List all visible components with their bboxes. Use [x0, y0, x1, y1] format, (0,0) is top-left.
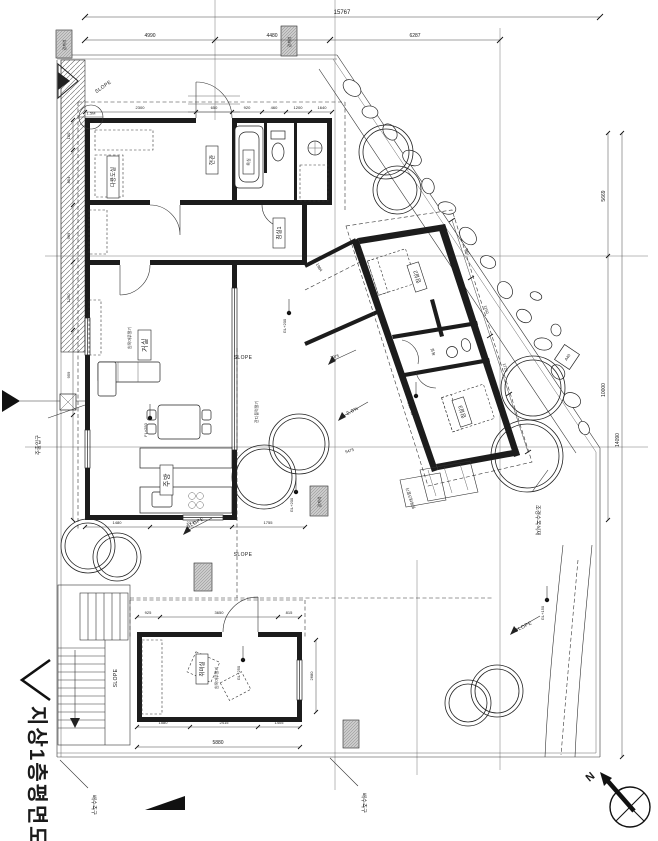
annotation-planting: 조경수목식재: [534, 505, 542, 535]
dim-at-2: 3650: [215, 610, 225, 615]
room-label-living: 거실: [140, 338, 149, 352]
trees: [61, 125, 565, 726]
boundary-stone-label: 경계석: [61, 39, 67, 50]
room-label-entrance: 현관: [208, 155, 216, 165]
sofa: [98, 362, 160, 396]
dim-left-5: 959: [66, 371, 71, 378]
dim-annex-total: 5880: [212, 740, 223, 746]
page-title: 지상1층평면도: [25, 706, 48, 841]
room-label-pantry: 다용도실: [109, 167, 117, 187]
annex-door: [223, 597, 258, 632]
pantry-shelf: [89, 210, 107, 254]
slope-label: SLOPE: [514, 620, 534, 634]
slope-label: SLOPE: [234, 355, 253, 361]
dim-ab-2: 2415: [220, 720, 230, 725]
slope-label: SLOPE: [94, 79, 113, 95]
dim-ab-3: 1405: [275, 720, 285, 725]
level-marker: GL+250: [236, 646, 245, 680]
dim-right-1: 5669: [601, 190, 607, 201]
boundary-stone-label: 경계석: [316, 496, 322, 507]
dim-left-3: 969: [66, 232, 71, 239]
svg-text:FL+250: FL+250: [143, 422, 148, 436]
dim-hb-1: 1480: [113, 520, 123, 525]
annex-closet: [142, 640, 162, 714]
level-marker: GL+150: [540, 586, 549, 620]
dim-int-1: 2300: [136, 105, 146, 110]
annotation-wood-floor: 원목마루깔기: [126, 327, 132, 349]
toilet: [272, 143, 284, 161]
wing-toilet: [460, 337, 473, 352]
north-arrow: N: [584, 770, 650, 827]
dim-at-3: 815: [286, 610, 293, 615]
wing: [346, 210, 532, 507]
slope-label: SLOPE: [234, 552, 253, 558]
leader-annotations: 주출입구 배수측구 배수측구 조경수목식재 잔디블럭깔기 원목데크깔기 원목마루…: [34, 327, 548, 815]
room-label-wing-bath: 욕실: [428, 347, 436, 356]
section-marker: [2, 390, 20, 412]
room-label-bedroom1: 침실1: [275, 226, 283, 239]
slope-labels: SLOPE SLOPE SLOPE SLOPE SLOPE SLOPE 2.0%: [94, 79, 533, 687]
dining-table: [147, 405, 211, 439]
annotation-wood-floor: 원목마루깔기: [213, 667, 219, 689]
room-label-annex: 취미실: [198, 661, 206, 676]
dim-right-2: 10000: [601, 383, 607, 397]
annotation-drain-left: 배수측구: [90, 795, 98, 815]
svg-text:GL+150: GL+150: [540, 605, 545, 620]
dim-left-2: 854: [66, 176, 71, 183]
dim-int-3: 920: [244, 105, 251, 110]
dim-left-4: 1260: [66, 293, 71, 303]
title-marker: [22, 660, 50, 700]
dim-top-2: 4480: [266, 33, 277, 39]
dim-int-6: 1640: [318, 105, 328, 110]
dim-left-1: 150: [66, 132, 71, 139]
dim-top-total: 15767: [334, 10, 351, 16]
kitchen-counter: [140, 448, 232, 513]
dim-int-5: 1200: [294, 105, 304, 110]
dim-wing-2: 1150: [483, 305, 491, 315]
wing-basin: [447, 347, 458, 358]
dim-top-1: 4990: [144, 33, 155, 39]
dim-right-total: 14090: [615, 433, 621, 447]
stairs: [58, 585, 130, 745]
dim-wing-3: 1725: [502, 363, 510, 374]
slope-wedge: [145, 796, 185, 810]
wing-door: [402, 340, 418, 364]
stair-arrow: [70, 718, 80, 728]
slope-pct: 2.0%: [345, 406, 359, 417]
svg-text:GL+250: GL+250: [236, 665, 241, 680]
drawing-title: 지상1층평면도: [22, 660, 50, 841]
boundary-stone-label: 경계석: [286, 36, 292, 47]
dim-hb-3: 1755: [264, 520, 274, 525]
hall-door: [150, 205, 180, 235]
floor-plan-drawing: 경계석 경계석 경계석 15767 4990 4480 6287 2300 65…: [0, 0, 658, 841]
kitchen-door: [120, 265, 150, 295]
annotation-main-entrance: 주출입구: [34, 435, 42, 455]
dim-yard: 3975: [330, 353, 341, 360]
closet: [95, 130, 153, 150]
dim-int-4: 460: [271, 105, 278, 110]
svg-text:GL+200: GL+200: [282, 318, 287, 333]
annotation-grass-block: 잔디블럭깔기: [253, 401, 259, 423]
toilet-tank: [271, 131, 285, 139]
dim-wing-total: 5475: [345, 447, 356, 455]
callout-bubble-top: 1.5M: [87, 111, 96, 116]
tv-wall: [89, 300, 101, 355]
slope-label: SLOPE: [113, 668, 119, 687]
floor-plan-page: 경계석 경계석 경계석 15767 4990 4480 6287 2300 65…: [0, 0, 658, 841]
dim-wing-1: 940: [464, 248, 471, 257]
shower: [300, 165, 328, 201]
dim-corridor: 1984: [315, 262, 324, 273]
north-label: N: [584, 770, 598, 784]
dim-annex-right: 2680: [309, 671, 314, 681]
room-label-kitchen: 주방: [162, 473, 171, 487]
dim-int-2: 650: [211, 105, 218, 110]
dim-ab-1: 1580: [159, 720, 169, 725]
callout-bubble-bottom: 100: [88, 119, 95, 124]
svg-text:GL+200: GL+200: [289, 497, 294, 512]
dim-top-3: 6287: [409, 33, 420, 39]
annotation-drain-right: 배수측구: [360, 793, 368, 813]
room-label-bath1: 욕실: [245, 158, 251, 166]
level-marker: GL+200: [282, 299, 291, 333]
dim-at-1: 925: [145, 610, 152, 615]
